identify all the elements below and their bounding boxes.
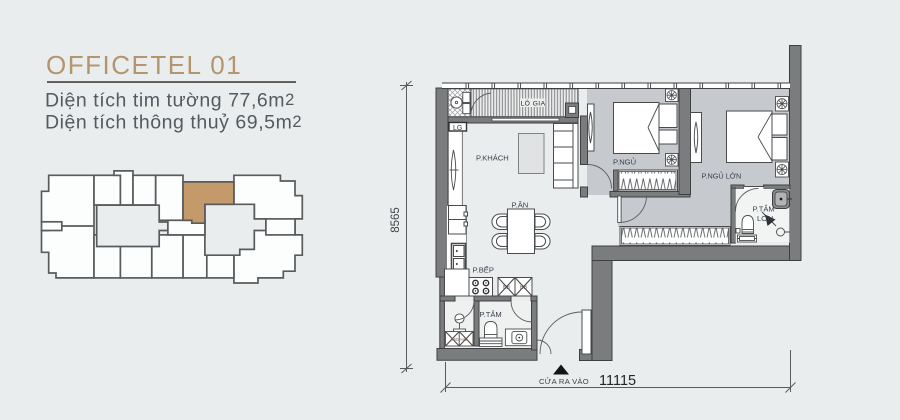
svg-text:MG HG: MG HG	[452, 337, 468, 342]
svg-text:LÔ GIA: LÔ GIA	[520, 99, 545, 108]
svg-text:Diện tích thông thuỷ 69,5m2: Diện tích thông thuỷ 69,5m2	[45, 112, 302, 134]
svg-text:P.ĂN: P.ĂN	[512, 200, 529, 209]
svg-text:P.TẮM: P.TẮM	[753, 205, 775, 214]
svg-text:OFFICETEL 01: OFFICETEL 01	[46, 50, 242, 80]
svg-text:P.BẾP: P.BẾP	[473, 264, 494, 274]
svg-text:NB: NB	[503, 285, 511, 291]
svg-text:CỬA RA VÀO: CỬA RA VÀO	[539, 377, 589, 386]
svg-text:P.TẮM: P.TẮM	[480, 310, 502, 319]
svg-text:LG: LG	[453, 125, 462, 132]
svg-text:HB: HB	[520, 285, 528, 291]
svg-text:P.KHÁCH: P.KHÁCH	[476, 154, 509, 163]
svg-text:Diện tích tim tường 77,6m2: Diện tích tim tường 77,6m2	[45, 90, 295, 112]
svg-text:LỚN: LỚN	[757, 214, 773, 223]
svg-text:P.NGỦ LỚN: P.NGỦ LỚN	[702, 171, 742, 180]
svg-text:8565: 8565	[390, 207, 402, 233]
svg-text:11115: 11115	[599, 373, 636, 389]
svg-text:P.NGỦ: P.NGỦ	[613, 158, 636, 167]
